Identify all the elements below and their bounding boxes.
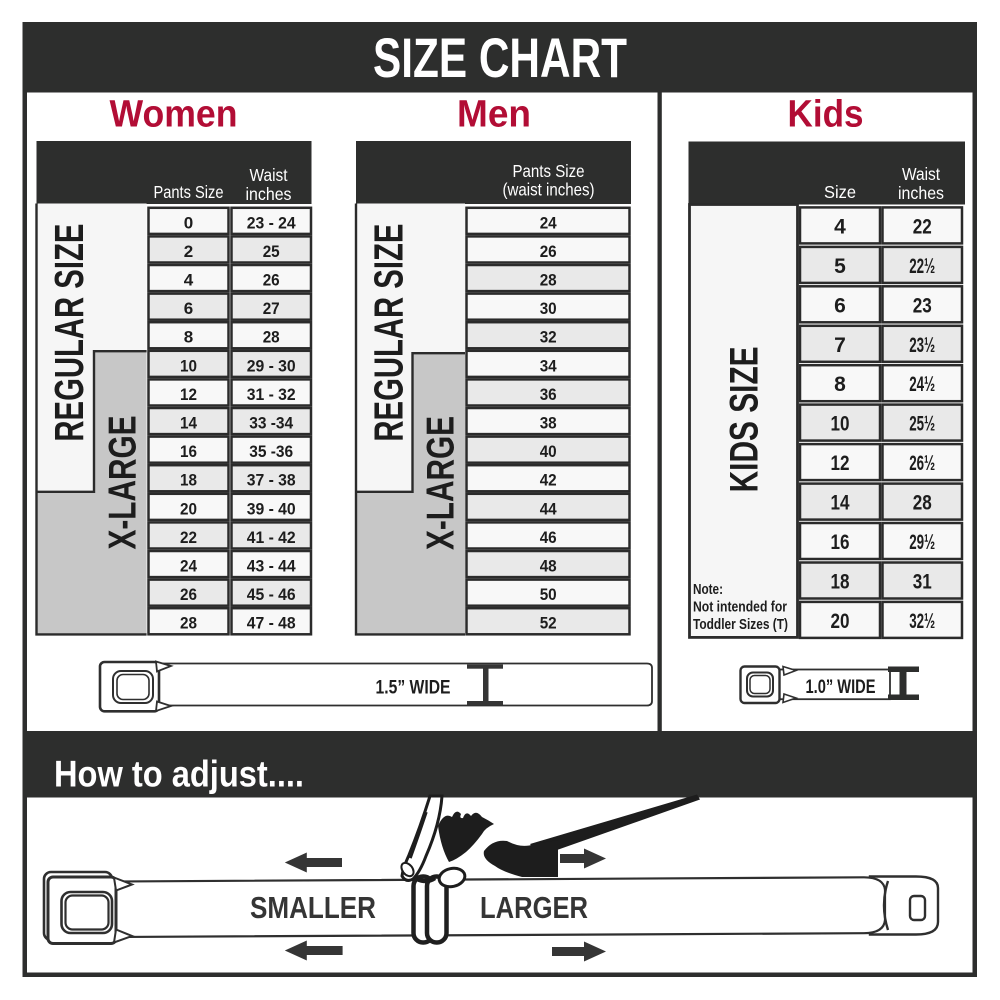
svg-text:47 - 48: 47 - 48 (247, 614, 296, 633)
svg-text:26: 26 (263, 271, 280, 290)
svg-text:KIDS SIZE: KIDS SIZE (723, 346, 767, 492)
svg-text:Kids: Kids (788, 94, 864, 136)
svg-text:Waist: Waist (250, 165, 288, 185)
svg-text:50: 50 (540, 585, 557, 604)
svg-text:28: 28 (913, 492, 932, 515)
svg-text:1.0” WIDE: 1.0” WIDE (806, 677, 876, 698)
svg-text:29 - 30: 29 - 30 (247, 356, 296, 375)
svg-text:33 -34: 33 -34 (249, 414, 293, 433)
svg-text:6: 6 (834, 294, 846, 317)
svg-text:35 -36: 35 -36 (249, 442, 293, 461)
svg-text:28: 28 (180, 614, 197, 633)
svg-text:46: 46 (540, 528, 557, 547)
svg-text:Men: Men (457, 94, 531, 136)
svg-text:0: 0 (184, 213, 193, 232)
svg-text:LARGER: LARGER (480, 890, 588, 925)
svg-text:1.5” WIDE: 1.5” WIDE (376, 678, 451, 699)
svg-text:25½: 25½ (909, 413, 935, 436)
svg-text:41 - 42: 41 - 42 (247, 528, 296, 547)
svg-text:45 - 46: 45 - 46 (247, 585, 296, 604)
svg-text:26: 26 (180, 585, 197, 604)
svg-text:24: 24 (540, 213, 557, 232)
svg-text:16: 16 (180, 442, 197, 461)
svg-text:39 - 40: 39 - 40 (247, 499, 296, 518)
svg-text:10: 10 (831, 413, 850, 436)
svg-text:20: 20 (831, 610, 850, 633)
svg-text:8: 8 (184, 328, 193, 347)
svg-text:7: 7 (834, 334, 846, 357)
svg-text:5: 5 (834, 255, 846, 278)
svg-text:37 - 38: 37 - 38 (247, 471, 296, 490)
svg-text:Note:: Note: (693, 581, 723, 598)
svg-text:22: 22 (913, 215, 932, 238)
svg-text:31 - 32: 31 - 32 (247, 385, 296, 404)
svg-text:Women: Women (110, 94, 238, 136)
svg-text:44: 44 (540, 499, 557, 518)
svg-text:Not intended for: Not intended for (693, 599, 787, 616)
svg-text:22½: 22½ (909, 255, 935, 278)
svg-text:12: 12 (180, 385, 197, 404)
svg-text:29½: 29½ (909, 531, 935, 554)
svg-text:52: 52 (540, 614, 557, 633)
svg-text:36: 36 (540, 385, 557, 404)
svg-text:SMALLER: SMALLER (250, 890, 376, 925)
svg-text:12: 12 (831, 452, 850, 475)
svg-text:18: 18 (180, 471, 197, 490)
svg-text:16: 16 (831, 531, 850, 554)
svg-text:inches: inches (898, 183, 944, 203)
svg-text:24½: 24½ (909, 373, 935, 396)
svg-text:24: 24 (180, 557, 197, 576)
svg-text:32½: 32½ (909, 610, 935, 633)
svg-text:X-LARGE: X-LARGE (419, 416, 462, 550)
svg-text:30: 30 (540, 299, 557, 318)
svg-text:38: 38 (540, 414, 557, 433)
svg-text:23½: 23½ (909, 334, 935, 357)
svg-text:8: 8 (834, 373, 846, 396)
svg-text:27: 27 (263, 299, 280, 318)
svg-text:REGULAR SIZE: REGULAR SIZE (46, 224, 92, 442)
svg-text:48: 48 (540, 557, 557, 576)
svg-text:SIZE CHART: SIZE CHART (373, 26, 627, 89)
svg-text:26½: 26½ (909, 452, 935, 475)
svg-text:inches: inches (246, 184, 292, 204)
svg-text:23: 23 (913, 294, 932, 317)
svg-text:14: 14 (831, 492, 850, 515)
svg-text:32: 32 (540, 328, 557, 347)
svg-text:28: 28 (540, 271, 557, 290)
svg-text:4: 4 (184, 271, 194, 290)
svg-text:23 - 24: 23 - 24 (247, 213, 296, 232)
svg-text:Waist: Waist (902, 164, 940, 184)
svg-text:14: 14 (180, 414, 197, 433)
svg-text:42: 42 (540, 471, 557, 490)
svg-text:4: 4 (834, 215, 846, 238)
svg-text:6: 6 (184, 299, 193, 318)
svg-text:43 - 44: 43 - 44 (247, 557, 296, 576)
svg-text:X-LARGE: X-LARGE (102, 416, 145, 550)
svg-text:10: 10 (180, 356, 197, 375)
svg-text:REGULAR SIZE: REGULAR SIZE (366, 224, 412, 442)
svg-text:31: 31 (913, 571, 932, 594)
svg-text:2: 2 (184, 242, 193, 261)
svg-text:Pants Size: Pants Size (154, 182, 224, 202)
svg-text:22: 22 (180, 528, 197, 547)
svg-text:Toddler Sizes (T): Toddler Sizes (T) (693, 616, 788, 633)
svg-text:18: 18 (831, 571, 850, 594)
svg-text:How to adjust....: How to adjust.... (54, 753, 304, 795)
svg-text:40: 40 (540, 442, 557, 461)
svg-text:34: 34 (540, 356, 557, 375)
svg-text:Pants Size: Pants Size (513, 161, 585, 181)
svg-text:25: 25 (263, 242, 280, 261)
svg-text:Size: Size (824, 182, 856, 202)
svg-text:28: 28 (263, 328, 280, 347)
svg-text:26: 26 (540, 242, 557, 261)
svg-text:20: 20 (180, 499, 197, 518)
svg-text:(waist inches): (waist inches) (503, 180, 595, 200)
